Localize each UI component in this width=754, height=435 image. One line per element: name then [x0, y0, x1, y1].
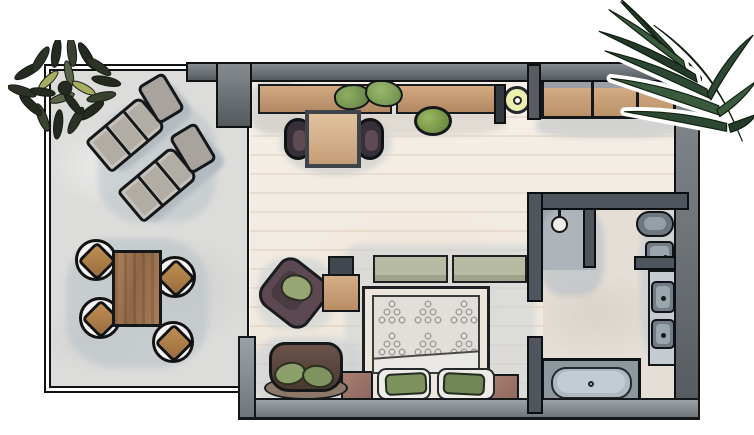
outdoor-dining-table [112, 250, 162, 327]
desk [305, 110, 361, 168]
drain-icon [588, 381, 594, 387]
pillow-cushion [442, 372, 485, 396]
left-lower-wall [238, 336, 256, 420]
vanity-sink [651, 319, 675, 349]
floor-plant-icon [414, 106, 452, 136]
corner-plant-icon [8, 40, 126, 142]
entry-wall-stub [527, 64, 541, 120]
bathroom-partition-wall [634, 256, 676, 270]
floor-plan-canvas [0, 0, 754, 435]
shower-head-icon [551, 216, 568, 233]
palm-frond-icon [560, 0, 754, 146]
bathroom-wall-left-upper [527, 192, 543, 302]
shelf-end-wall [494, 84, 506, 124]
minibar-cabinet [322, 274, 360, 312]
pillow-cushion [384, 372, 427, 396]
outdoor-chair [75, 239, 117, 281]
wall-pillar [216, 62, 252, 128]
bed-bench [452, 255, 527, 283]
duvet [372, 295, 480, 374]
vanity-sink [651, 281, 675, 313]
sofa [262, 340, 350, 404]
bed-bench [373, 255, 448, 283]
bathroom-wall-top [527, 192, 689, 210]
toilet [636, 211, 674, 237]
wall-shelf [396, 84, 500, 114]
cabinet-tray [328, 256, 354, 276]
shower-divider-wall [583, 208, 596, 268]
bathroom-wall-left-lower [527, 336, 543, 414]
outdoor-chair [152, 321, 194, 363]
bottom-wall [240, 398, 700, 420]
